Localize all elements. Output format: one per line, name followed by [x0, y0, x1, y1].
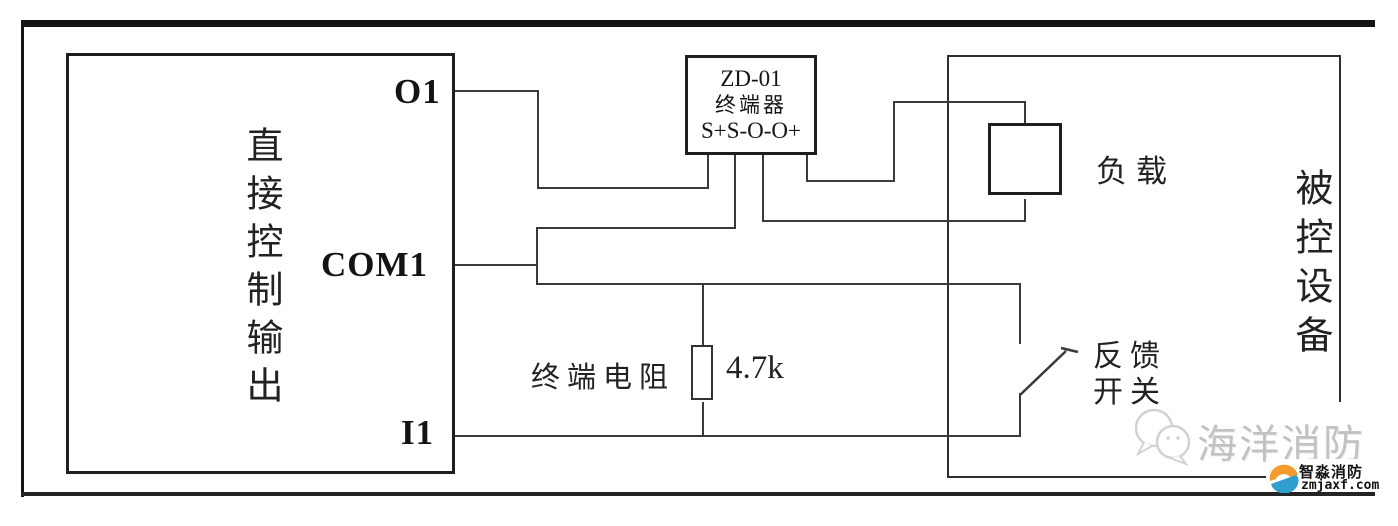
- wire-o1-to-splus: [537, 187, 709, 189]
- terminal-o1-label: O1: [394, 72, 441, 112]
- logo-domain-text: zmjaxf.com: [1301, 478, 1379, 493]
- wire-load-bottom: [1024, 199, 1026, 222]
- load-box: [988, 123, 1062, 195]
- terminal-resistor-symbol: [691, 345, 713, 400]
- wire-switch-top: [1019, 283, 1021, 344]
- terminal-i1-label: I1: [401, 413, 434, 453]
- wire-com1-junction-vertical: [536, 227, 538, 285]
- frame-bottom: [21, 492, 1375, 496]
- zd01-terminator-box: ZD-01 终端器 S+S-O-O+: [685, 55, 817, 155]
- zd01-pins-label: S+S-O-O+: [688, 117, 814, 144]
- zd01-name-label: 终端器: [688, 93, 814, 118]
- frame-left: [21, 20, 24, 497]
- direct-control-output-label: 直接控制输出: [234, 126, 288, 421]
- load-label: 负载: [1096, 146, 1176, 191]
- wire-com1-stub: [455, 264, 538, 266]
- controlled-device-label: 被控设备: [1284, 168, 1339, 368]
- wire-load-top: [1024, 101, 1026, 125]
- wire-o1-vertical: [537, 90, 539, 189]
- terminal-resistor-label: 终端电阻: [531, 354, 675, 396]
- feedback-switch-blade: [1008, 338, 1088, 400]
- wire-com1-bus: [536, 283, 1021, 285]
- wire-resistor-top: [702, 283, 704, 347]
- wire-splus-stub: [707, 155, 709, 189]
- wire-i1-bus: [455, 435, 1021, 437]
- wire-oplus-vertical: [893, 101, 895, 182]
- terminal-resistor-value: 4.7k: [726, 350, 784, 387]
- wire-o1-horizontal: [455, 90, 539, 92]
- terminal-com1-label: COM1: [321, 245, 428, 285]
- wire-load-top-horizontal: [893, 101, 1026, 103]
- logo-swoosh-icon: [1268, 463, 1300, 493]
- wire-sminus-horizontal: [536, 227, 736, 229]
- wire-ominus-stub: [762, 155, 764, 222]
- wire-oplus-stub: [806, 155, 808, 182]
- feedback-switch-label-line1: 反馈: [1093, 339, 1167, 375]
- wire-oplus-horizontal: [806, 180, 895, 182]
- wire-sminus-stub: [734, 155, 736, 229]
- wiring-diagram: 直接控制输出 O1 COM1 I1 被控设备 ZD-01 终端器 S+S-O-O…: [0, 0, 1398, 526]
- feedback-switch-label: 反馈 开关: [1093, 339, 1167, 411]
- frame-top: [21, 20, 1375, 27]
- wechat-bubbles-icon: [1128, 404, 1200, 466]
- wire-ominus-horizontal: [762, 220, 1026, 222]
- zd01-model-label: ZD-01: [688, 65, 814, 92]
- wire-resistor-bottom: [702, 402, 704, 437]
